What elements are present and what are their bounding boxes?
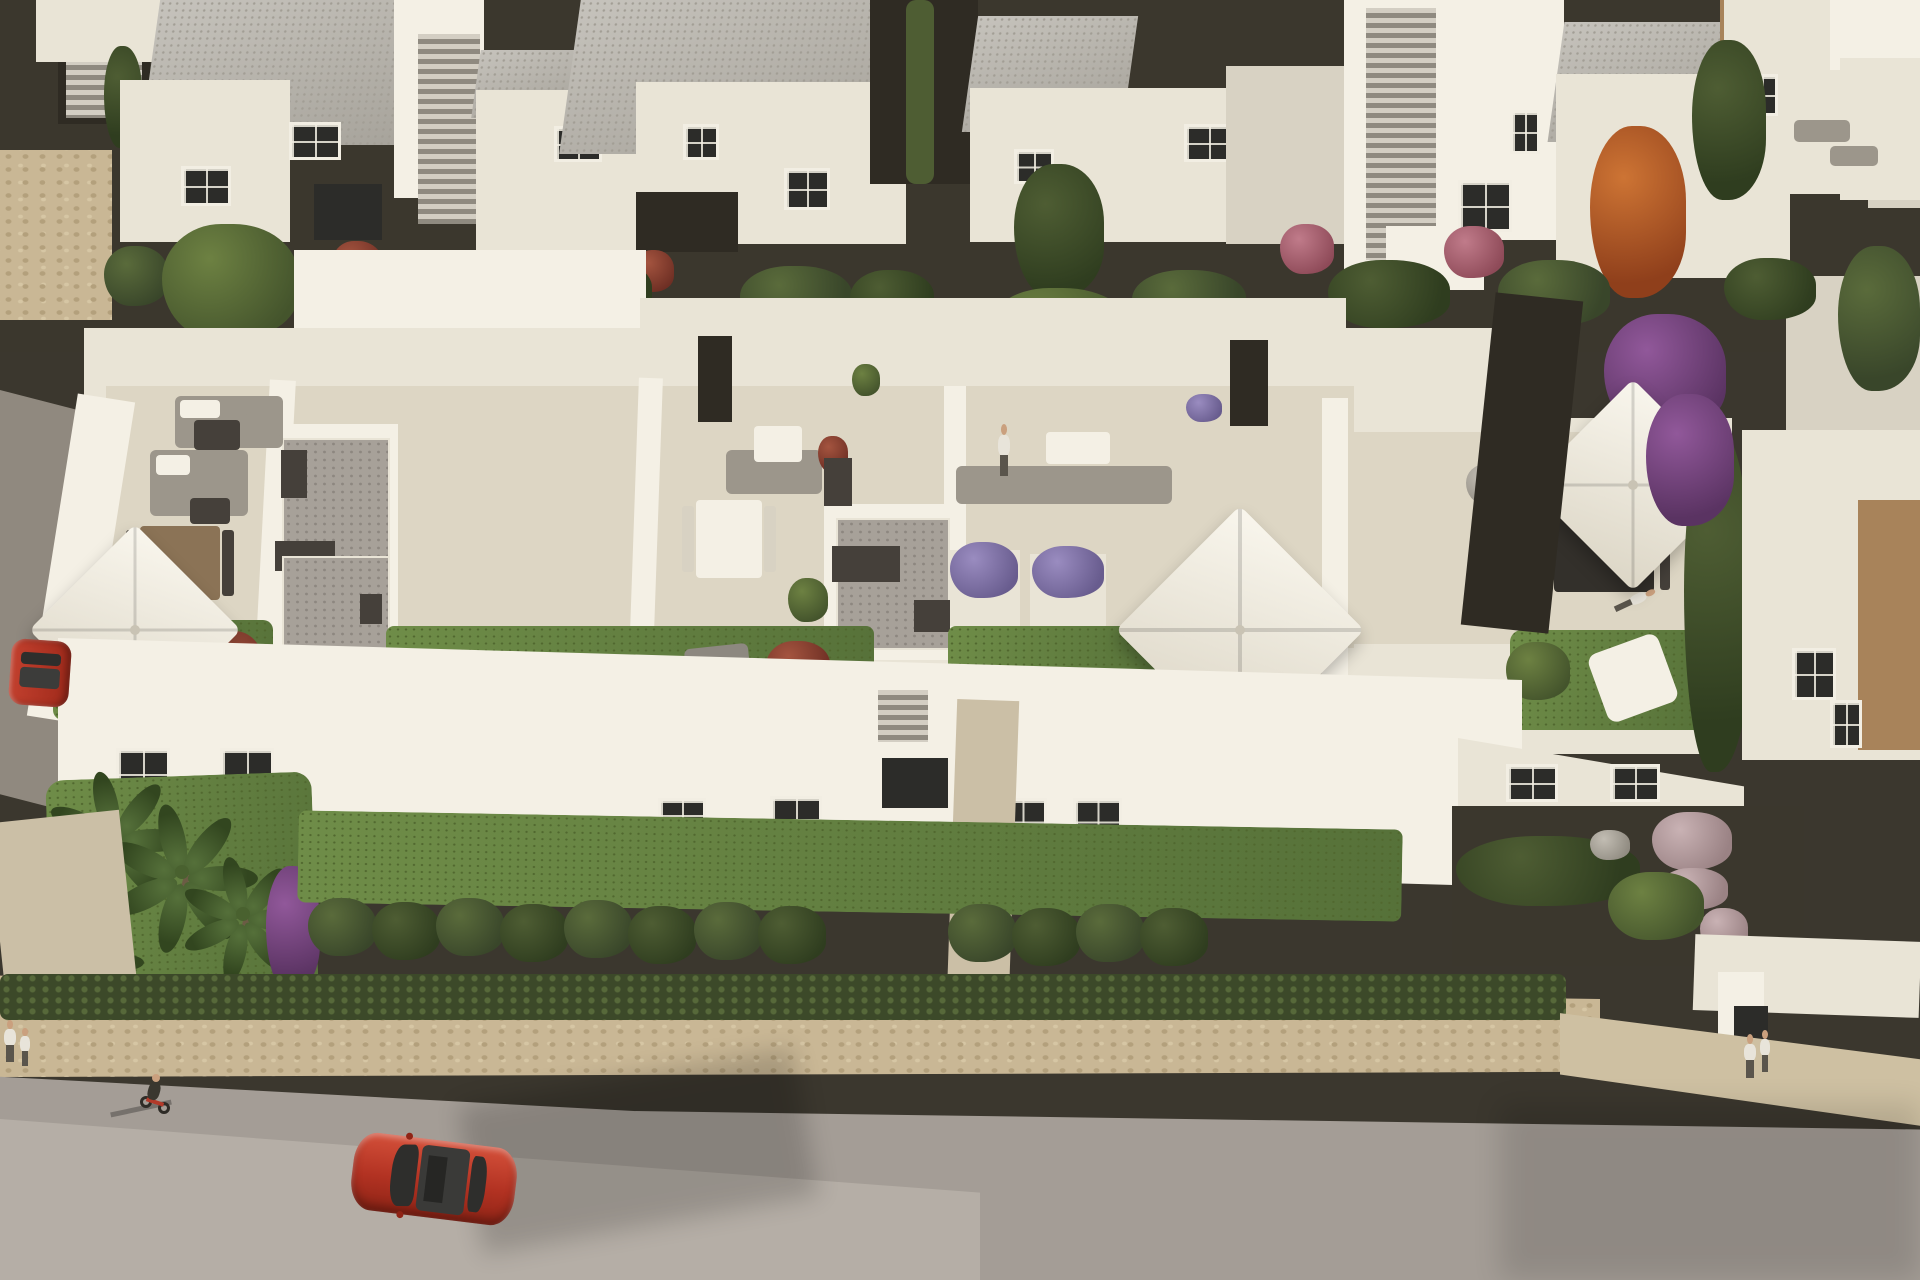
street-shadow: [1500, 1104, 1920, 1280]
window: [683, 124, 719, 160]
sofa-cushion: [156, 455, 190, 475]
pink-bush: [1444, 226, 1504, 278]
hedge: [1076, 904, 1144, 962]
dining-table-white: [696, 500, 762, 578]
coffee-table: [190, 498, 230, 524]
palm-crown: [236, 907, 250, 921]
outdoor-sofa: [956, 466, 1172, 504]
hedge: [1140, 908, 1208, 966]
potted-plant: [788, 578, 828, 622]
lavender: [950, 542, 1018, 598]
figure-head: [1762, 1030, 1768, 1039]
ac-unit: [360, 594, 382, 624]
figure-legs: [6, 1045, 13, 1062]
ball-bush: [1652, 812, 1732, 870]
figure-torso: [1760, 1039, 1770, 1056]
ball-bush: [1590, 830, 1630, 860]
figure-torso: [998, 435, 1009, 456]
hedge-row: [0, 974, 1566, 1020]
bg-building-facade: [120, 80, 290, 242]
hedge: [1328, 260, 1450, 328]
hedge: [694, 902, 762, 960]
window: [1458, 180, 1512, 232]
hedge: [1724, 258, 1816, 320]
potted-plant: [852, 364, 880, 396]
rider-head: [152, 1074, 160, 1082]
hedge: [308, 898, 376, 956]
window: [181, 166, 231, 206]
staircase: [418, 34, 480, 224]
sofa-cushion: [180, 400, 220, 418]
window: [1792, 648, 1836, 700]
pedestrian: [18, 1028, 32, 1066]
outdoor-sofa: [1794, 120, 1850, 142]
entrance-stairs: [878, 690, 928, 742]
ac-unit: [832, 546, 900, 582]
plant-stand: [824, 458, 852, 506]
hedge: [1838, 246, 1920, 391]
coffee-table: [194, 420, 240, 450]
window: [289, 122, 341, 160]
potted-plant: [1186, 394, 1222, 422]
person-standing: [996, 424, 1012, 476]
boulder-wall: [0, 150, 112, 320]
yucca: [1608, 872, 1704, 940]
figure-legs: [1000, 455, 1007, 476]
chair-row: [222, 530, 234, 596]
bg-wall: [1226, 66, 1354, 244]
pedestrian: [2, 1020, 18, 1062]
red-hatchback: [8, 638, 72, 708]
bg-building-facade: [970, 88, 1238, 242]
window: [1610, 764, 1660, 802]
brick-wall: [1858, 500, 1920, 750]
chair-row: [764, 506, 776, 572]
figure-torso: [20, 1036, 30, 1051]
hedge: [104, 246, 168, 306]
hedge: [564, 900, 632, 958]
storage-box: [281, 450, 307, 498]
car-roof-glass: [19, 666, 61, 689]
bougainvillea: [1646, 394, 1734, 526]
hedge: [758, 906, 826, 964]
chair-row: [682, 506, 694, 572]
door: [314, 184, 382, 240]
window: [1506, 764, 1558, 802]
cypress-tree: [1014, 164, 1104, 298]
window: [1830, 700, 1862, 748]
parasol-pole: [128, 623, 142, 637]
figure-head: [7, 1020, 13, 1029]
hedge-column: [1692, 40, 1766, 200]
hedge: [436, 898, 504, 956]
stairwell: [698, 336, 732, 422]
figure-legs: [1762, 1055, 1768, 1072]
parasol-pole: [1233, 623, 1247, 637]
outdoor-sofa: [1830, 146, 1878, 166]
cyclist: [110, 1066, 190, 1126]
pedestrian: [1742, 1034, 1758, 1078]
pink-bush: [1280, 224, 1334, 274]
aerial-render-scene: [0, 0, 1920, 1280]
stairwell: [1230, 340, 1268, 426]
window: [784, 168, 830, 210]
figure-legs: [22, 1051, 28, 1066]
figure-legs: [1746, 1060, 1753, 1078]
lavender: [1032, 546, 1104, 598]
figure-head: [1001, 424, 1007, 435]
figure-head: [1747, 1034, 1753, 1044]
hedge: [500, 904, 568, 962]
roof-deck: [1840, 58, 1920, 200]
parasol-pole: [1626, 478, 1640, 492]
coffee-table: [754, 426, 802, 462]
armchair: [246, 412, 280, 438]
hedge: [1012, 908, 1080, 966]
figure-torso: [4, 1029, 15, 1046]
skylight: [1510, 110, 1540, 154]
alley-hedge: [906, 0, 934, 184]
figure-torso: [1744, 1044, 1755, 1062]
banana-plant: [162, 224, 298, 340]
hedge: [628, 906, 696, 964]
hedge: [948, 904, 1016, 962]
figure-legs: [1614, 599, 1633, 612]
hedge: [372, 902, 440, 960]
orange-tree: [1590, 126, 1686, 298]
entrance-door: [882, 758, 948, 808]
figure-head: [22, 1028, 28, 1036]
rider-body: [146, 1081, 162, 1101]
sofa-cushion: [1046, 432, 1110, 464]
ac-unit: [914, 600, 950, 632]
pedestrian: [1758, 1030, 1772, 1072]
gravel-recess: [636, 192, 738, 252]
